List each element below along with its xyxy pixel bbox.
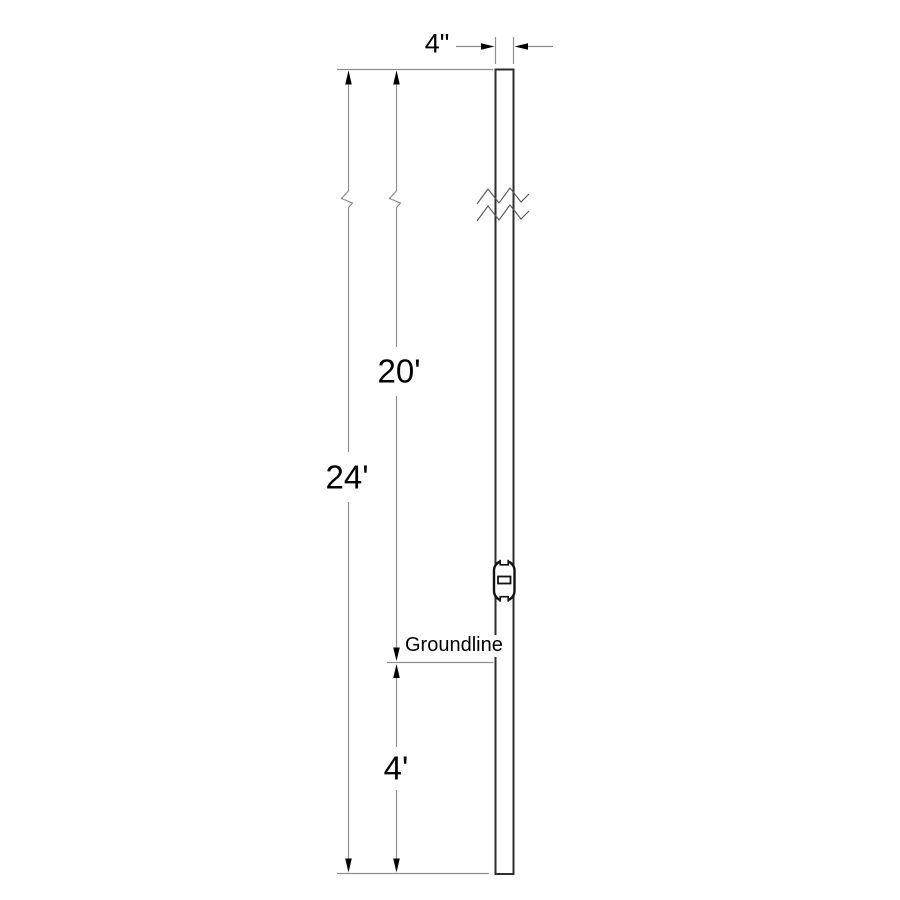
pole-outline <box>496 70 514 875</box>
arrowhead-up <box>345 71 352 85</box>
arrowhead-left <box>515 43 529 50</box>
drawing-canvas: 4" 20' 24' 4' Groundline <box>0 0 900 900</box>
arrowhead-down <box>393 859 400 873</box>
overall-height-label: 24' <box>323 461 370 494</box>
groundline-label: Groundline <box>402 635 506 657</box>
pole-width-dimension <box>456 43 553 50</box>
extension-lines <box>337 37 514 874</box>
pole-width-label: 4" <box>423 31 452 58</box>
arrowhead-down <box>345 859 352 873</box>
above-ground-height-label: 20' <box>375 355 422 388</box>
pole-groundline-detail <box>494 559 515 603</box>
arrowhead-up <box>393 71 400 85</box>
diagram-linework <box>0 0 900 900</box>
arrowhead-down <box>393 648 400 662</box>
setting-depth-label: 4' <box>382 752 411 785</box>
detail-center-bar <box>498 577 511 584</box>
break-symbol-jog <box>342 191 353 208</box>
break-symbol-jog <box>390 191 401 208</box>
arrowhead-right <box>481 43 495 50</box>
arrowhead-up <box>393 664 400 678</box>
